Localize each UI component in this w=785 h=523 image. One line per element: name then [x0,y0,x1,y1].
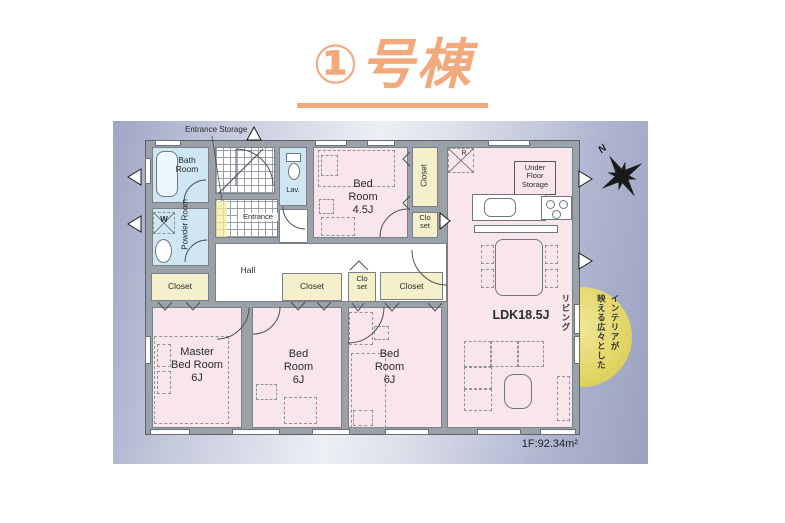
window [312,429,350,435]
bedroom3-label: Bed Room 6J [362,348,417,388]
closet-label: Closet [421,150,430,200]
window [155,140,181,146]
dining-chair [545,269,558,288]
hall-connector [279,209,308,243]
floor-plan-page: ①号棟 [0,0,785,523]
entrance-label: Entrance [238,213,278,221]
wardrobe [349,312,373,345]
callout-line: 映える広々とした [594,294,608,390]
callout-line: インテリアが [607,294,621,390]
toilet-bowl [288,163,300,180]
closet-small-label: Clo set [412,214,438,231]
master-bedroom-label: Master Bed Room 6J [160,346,234,386]
window [145,158,151,184]
burner [546,200,555,209]
callout-line: リビング [558,294,572,390]
pillow [353,410,373,426]
sofa-cushion [464,389,492,411]
window [145,336,151,364]
under-floor-storage-label: Under Floor Storage [514,164,556,189]
window [367,140,395,146]
ldk-label: LDK18.5J [486,309,556,323]
desk [321,217,355,236]
window [488,140,530,146]
powder-room-label: Powder Room [182,194,191,254]
entrance-storage-area [216,201,227,237]
bathroom-label: Bath Room [163,156,211,175]
window [315,140,347,146]
entrance-storage-label: Entrance Storage [185,126,277,135]
window [574,336,580,364]
hall-label: Hall [234,266,262,275]
burner [559,200,568,209]
burner [552,210,561,219]
page-title: ①号棟 [297,20,489,108]
window [477,429,521,435]
bedroom45-label: Bed Room 4.5J [331,178,395,218]
dining-chair [481,269,494,288]
powder-sink [155,239,172,263]
toilet-tank [286,153,301,162]
callout-text: インテリアが 映える広々とした リビング [585,294,631,390]
refrigerator-label: R [458,150,470,158]
counter-ledge [474,225,558,233]
closet-label: Closet [151,282,209,291]
window [540,429,576,435]
pillow [321,155,338,176]
window [232,429,280,435]
desk [284,397,317,424]
kitchen-sink [484,198,516,217]
sofa-cushion [518,341,544,367]
dining-chair [481,245,494,264]
dining-table [495,239,543,296]
closet-label: Closet [282,282,342,291]
sofa-cushion [464,367,492,389]
staircase [215,147,275,194]
lavatory-label: Lav. [281,186,305,194]
washer-label: W [156,216,172,225]
window [574,304,580,334]
closet-label: Closet [380,282,443,291]
sofa-cushion [464,341,491,367]
window [385,429,429,435]
dining-chair [545,245,558,264]
closet-small-label: Clo set [348,275,376,292]
coffee-table [504,374,532,409]
floor-area-label: 1F:92.34m² [450,438,578,450]
window [150,429,190,435]
side-table [374,326,389,340]
sofa-cushion [491,341,518,367]
bedroom2-label: Bed Room 6J [271,348,326,388]
